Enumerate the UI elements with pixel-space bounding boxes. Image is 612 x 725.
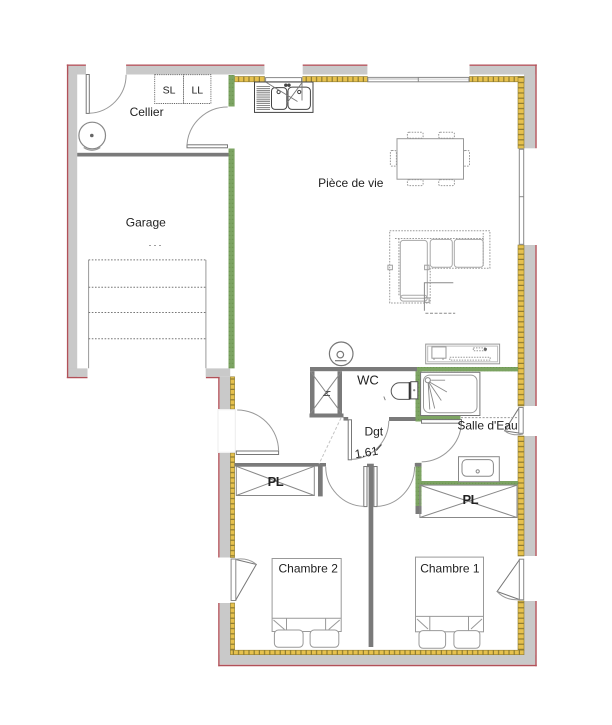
svg-text:Pièce de vie: Pièce de vie	[318, 176, 384, 190]
svg-text:Salle d'Eau: Salle d'Eau	[457, 419, 517, 433]
svg-text:PL: PL	[462, 492, 478, 507]
svg-text:Garage: Garage	[126, 216, 166, 230]
svg-text:PL: PL	[268, 474, 284, 489]
svg-text:SL: SL	[163, 85, 176, 97]
svg-text:Chambre 2: Chambre 2	[279, 562, 339, 576]
svg-text:Chambre 1: Chambre 1	[420, 561, 480, 575]
svg-text:Dgt: Dgt	[364, 425, 383, 439]
svg-text:Cellier: Cellier	[130, 105, 164, 119]
svg-text:. . .: . . .	[149, 238, 162, 248]
svg-text:LL: LL	[191, 85, 203, 97]
svg-text:WC: WC	[357, 373, 379, 388]
